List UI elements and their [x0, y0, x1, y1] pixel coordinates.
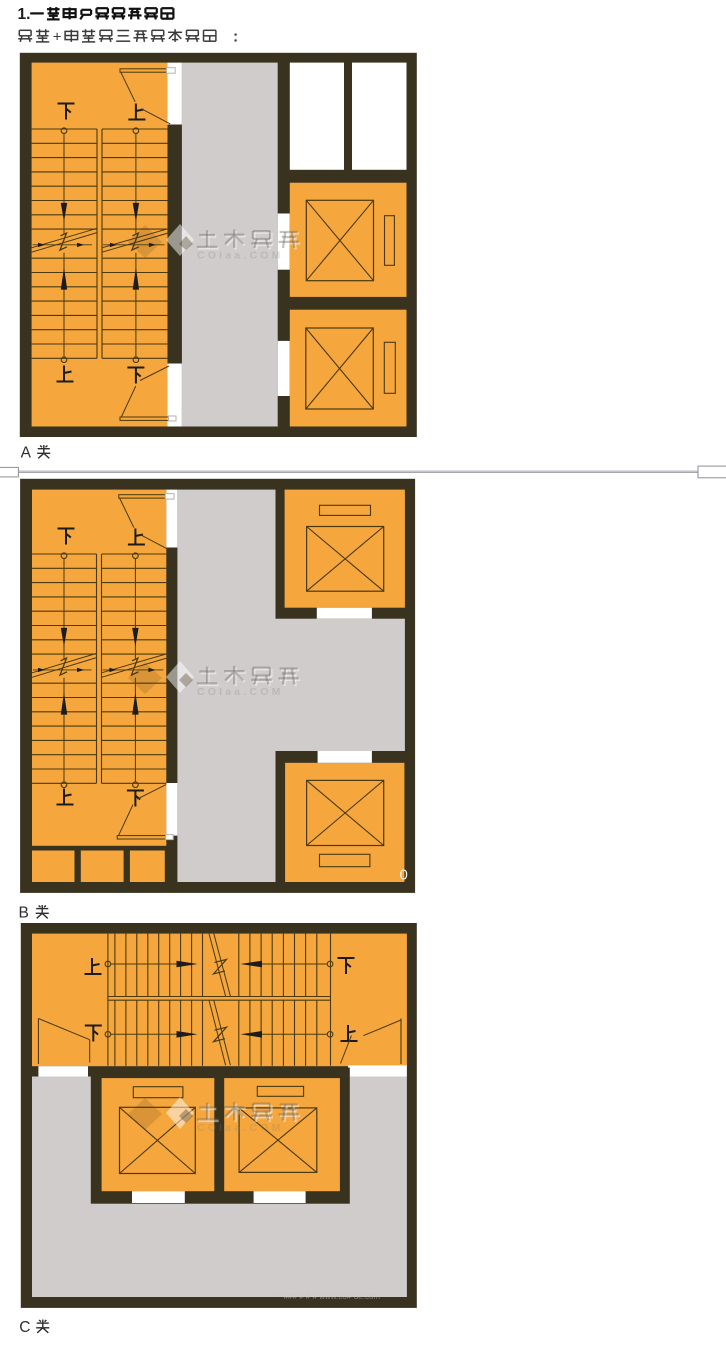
- svg-text:1.: 1.: [18, 6, 31, 23]
- svg-text:COIaa.COM: COIaa.COM: [197, 250, 284, 262]
- svg-text:*** ### # # # www.co#-de.com: *** ### # # # www.co#-de.com: [272, 1292, 380, 1301]
- svg-text:+: +: [53, 29, 62, 46]
- svg-text:B: B: [19, 905, 29, 922]
- svg-text:C: C: [19, 1319, 30, 1336]
- svg-text:COIaa.COM: COIaa.COM: [197, 686, 284, 698]
- svg-text:COIaa.COM: COIaa.COM: [197, 1122, 284, 1134]
- svg-text:0: 0: [400, 867, 408, 884]
- svg-text:A: A: [21, 445, 32, 462]
- svg-text::: :: [233, 29, 238, 46]
